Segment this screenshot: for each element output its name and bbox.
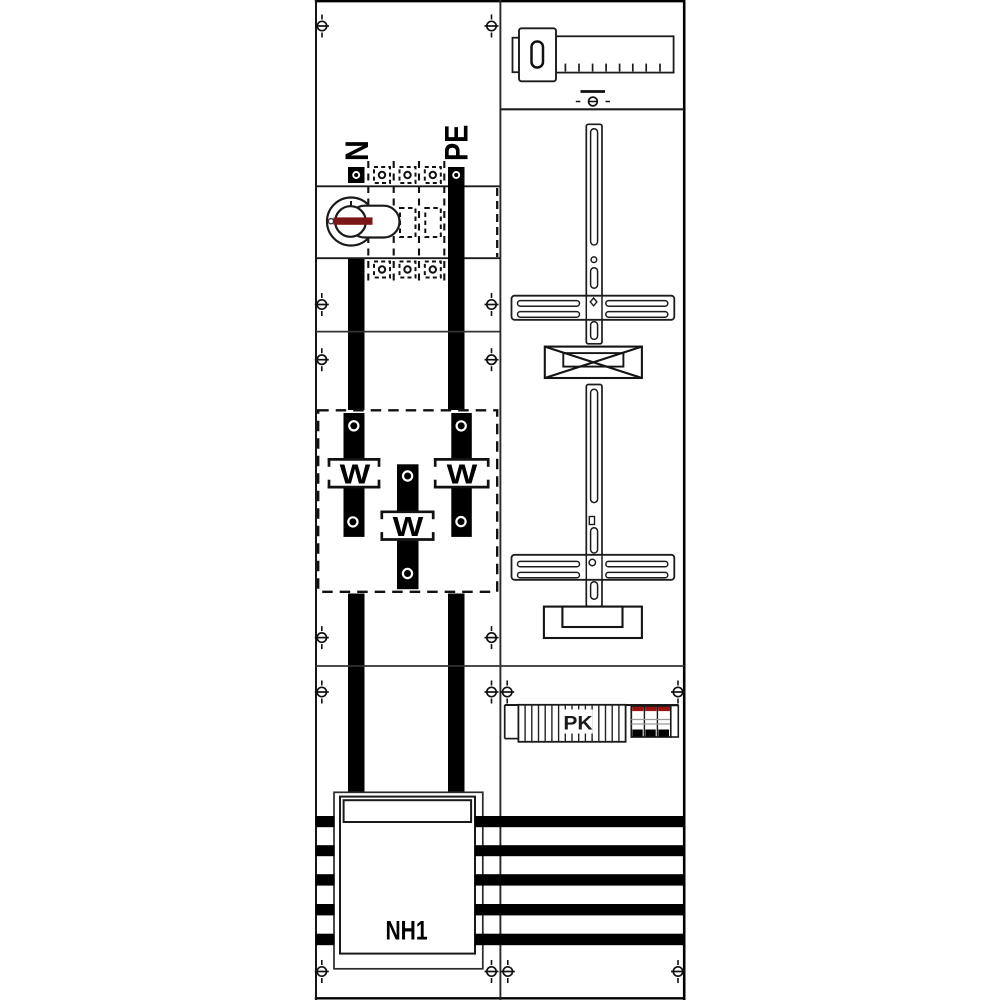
svg-text:PE: PE: [439, 125, 475, 161]
svg-text:NH1: NH1: [385, 916, 427, 946]
svg-text:W: W: [447, 460, 478, 490]
svg-text:W: W: [340, 460, 371, 490]
svg-text:PK: PK: [563, 713, 593, 734]
svg-text:W: W: [393, 512, 424, 542]
svg-text:N: N: [340, 140, 376, 161]
